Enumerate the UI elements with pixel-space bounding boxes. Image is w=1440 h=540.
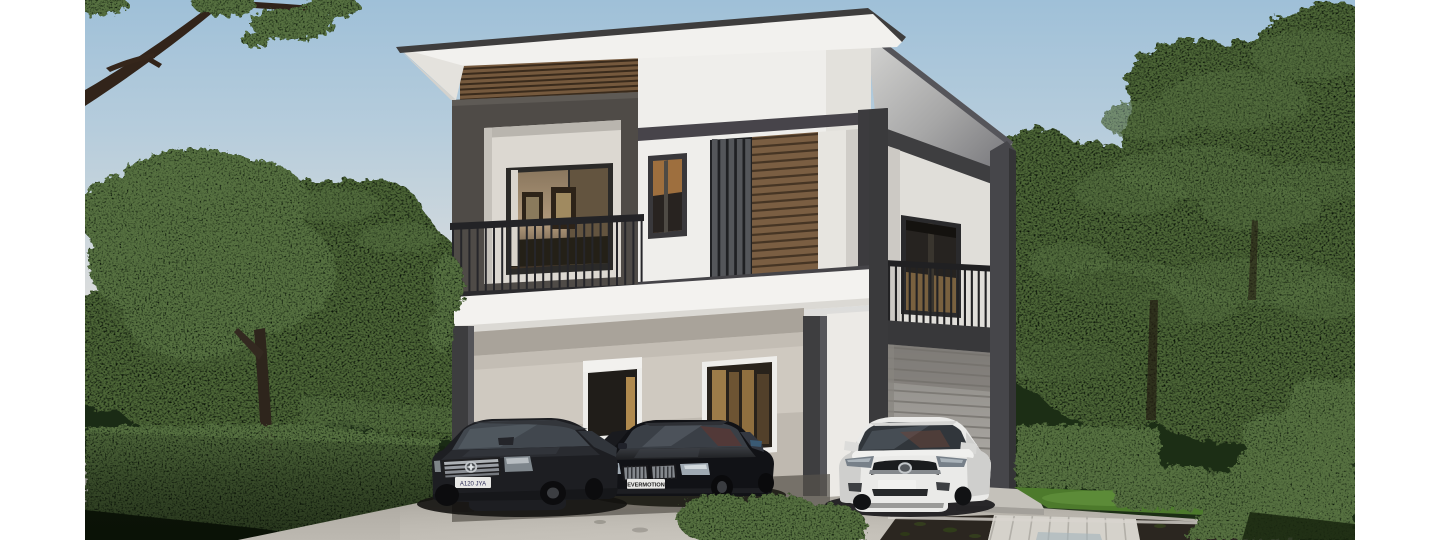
svg-text:A120 JYA: A120 JYA (460, 482, 486, 488)
svg-text:EVERMOTION: EVERMOTION (627, 483, 665, 489)
